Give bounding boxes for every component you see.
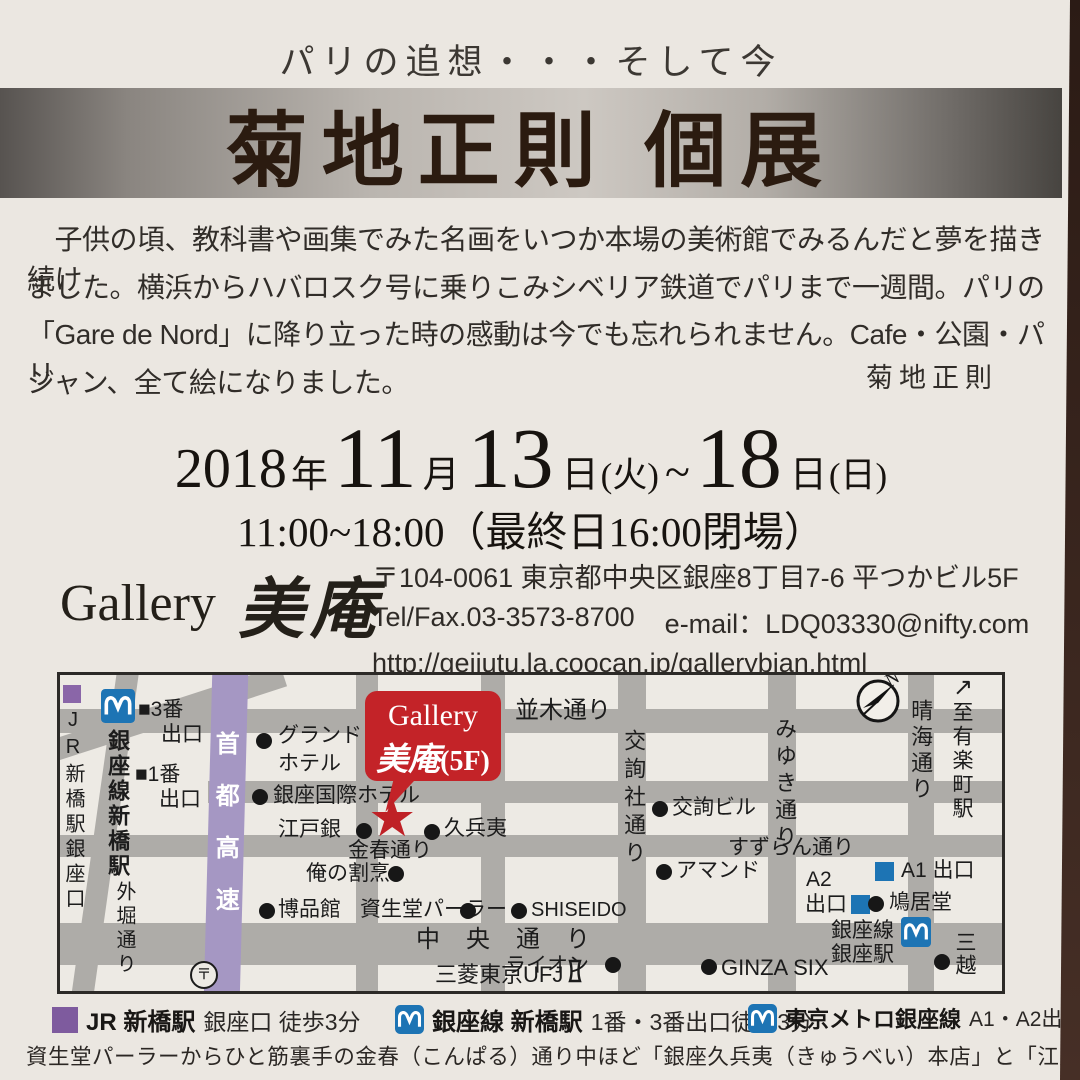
tokyo-metro-icon (748, 1004, 777, 1033)
label-jr-shimbashi-station: JR新橋駅銀座口 (62, 709, 83, 913)
date-year: 2018 (175, 437, 287, 501)
label-sotobori-dori: 外堀通り (113, 881, 134, 977)
label-grand-hotel-1: グランド (278, 725, 362, 747)
gallery-name-en: Gallery (60, 574, 216, 633)
poi-dot (256, 733, 272, 749)
date-day-start-week: (火) (601, 447, 659, 498)
legend-station-name: 銀座線 新橋駅 (432, 1002, 583, 1037)
poi-dot (460, 903, 476, 919)
gallery-name-jp: 美庵 (238, 556, 382, 652)
poi-dot (424, 824, 440, 840)
tokyo-metro-icon (395, 1005, 424, 1034)
label-kyukyodo: 鳩居堂 (889, 892, 952, 914)
label-exit3: ■3番 (138, 699, 183, 721)
date-day-end-unit: 日 (790, 444, 827, 498)
intro-line: 子供の頃、教科書や画集でみた名画をいつか本場の美術館でみるんだと夢を描き続け (27, 218, 1057, 266)
date-day-end: 18 (696, 408, 782, 508)
title-banner: 菊地正則 個展 (0, 88, 1062, 198)
legend-station-name: JR 新橋駅 (86, 1002, 195, 1037)
gallery-address: 〒104-0061 東京都中央区銀座8丁目7-6 平つかビル5F (372, 556, 1029, 595)
label-namiki-dori: 並木通り (515, 698, 611, 723)
label-shiseido-parlour: 資生堂パーラー (360, 899, 507, 921)
poi-dot (388, 866, 404, 882)
poi-dot (605, 957, 621, 973)
poi-dot (701, 959, 717, 975)
label-ginza-six: GINZA SIX (721, 956, 829, 979)
poi-dot (252, 789, 268, 805)
poi-dot (656, 864, 672, 880)
intro-line: 「Gare de Nord」に降り立った時の感動は今でも忘れられません。Cafe… (27, 313, 1057, 361)
bubble-floor: (5F) (440, 746, 490, 777)
label-a2-exit: 出口 (805, 894, 847, 916)
legend-tokyo-metro: 東京メトロ銀座線 A1・A2出口徒歩5分 (748, 1002, 1080, 1034)
label-ore-no-kappo: 俺の割烹 (306, 863, 390, 885)
label-ginza-line-shimbashi: 銀座線新橋駅 (106, 729, 129, 879)
legend-station-detail: 銀座口 徒歩3分 (203, 1003, 360, 1037)
label-ginza-station-line: 銀座線 (831, 920, 894, 942)
to-yurakucho-arrow: ↗ (953, 675, 973, 700)
bubble-gallery-jp: 美庵 (376, 741, 440, 777)
tokyo-metro-icon (101, 689, 135, 723)
bubble-gallery-en: Gallery (365, 699, 501, 733)
gallery-contact: 〒104-0061 東京都中央区銀座8丁目7-6 平つかビル5F Tel/Fax… (372, 556, 1029, 679)
date-month-unit: 月 (423, 444, 460, 498)
label-to-yurakucho: 至有楽町駅 (950, 701, 972, 821)
post-office-icon: 〒 (190, 961, 218, 989)
opening-hours: 11:00~18:00（最終日16:00閉場） (0, 498, 1062, 558)
date-day-start: 13 (468, 408, 554, 508)
road-konparu-suzuran (60, 835, 1005, 857)
exhibition-dates: 2018 年 11 月 13 日 (火) ~ 18 日 (日) (0, 408, 1062, 508)
label-exit1: ■1番 (135, 764, 180, 786)
gallery-tel: Tel/Fax.03-3573-8700 (372, 602, 635, 641)
label-shuto-expressway: 首都高速 (212, 731, 237, 939)
gallery-email: e-mail：LDQ03330@nifty.com (665, 602, 1030, 641)
label-hakuhinkan: 博品館 (278, 899, 341, 921)
poi-dot (652, 801, 668, 817)
poi-dot (259, 903, 275, 919)
label-edogin: 江戸銀 (278, 819, 341, 841)
jr-mark-square (63, 685, 81, 703)
label-a1-exit: A1 出口 (901, 860, 975, 882)
poi-dot (511, 903, 527, 919)
label-amand: アマンド (676, 860, 760, 882)
poi-dot (934, 954, 950, 970)
label-chuo-dori: 中央通り (416, 927, 616, 952)
jr-legend-square (52, 1007, 78, 1033)
access-map: JR新橋駅銀座口 銀座線新橋駅 ■3番 出口 ■1番 出口 首都高速 外堀通り … (57, 672, 1005, 994)
label-kyubei: 久兵夷 (444, 818, 507, 840)
poi-dot (868, 896, 884, 912)
label-ginza-station: 銀座駅 (831, 944, 894, 966)
label-lion: ライオン (505, 955, 589, 977)
gallery-star-marker: ★ (368, 791, 416, 845)
exhibition-title: 菊地正則 個展 (226, 84, 837, 203)
a1-exit-square (875, 862, 894, 881)
label-kojun-building: 交詢ビル (672, 797, 756, 819)
access-note: 資生堂パーラーからひと筋裏手の金春（こんぱる）通り中ほど「銀座久兵夷（きゅうべい… (26, 1040, 1080, 1071)
legend-jr: JR 新橋駅 銀座口 徒歩3分 (52, 1002, 361, 1037)
label-grand-hotel-2: ホテル (278, 753, 341, 775)
label-harumi-dori: 晴海通り (909, 699, 932, 803)
legend-station-name: 東京メトロ銀座線 (785, 1002, 961, 1034)
date-day-end-week: (日) (829, 447, 887, 498)
date-day-start-unit: 日 (562, 444, 599, 498)
tokyo-metro-icon (901, 917, 931, 947)
intro-line: ました。横浜からハバロスク号に乗りこみシベリア鉄道でパリまで一週間。パリの (27, 266, 1057, 314)
label-exit1-suffix: 出口 (159, 789, 201, 811)
label-miyuki-dori: みゆき通り (773, 717, 796, 852)
date-tilde: ~ (665, 445, 690, 498)
label-exit3-suffix: 出口 (161, 724, 203, 746)
gallery-location-bubble: Gallery 美庵(5F) (365, 691, 501, 781)
artist-signature: 菊地正則 (866, 356, 998, 395)
flyer-photo: { "tagline": "パリの追想・・・そして今", "title": "菊… (0, 0, 1080, 1080)
label-suzuran-dori: すずらん通り (728, 837, 854, 859)
date-month: 11 (334, 408, 417, 508)
label-shiseido: SHISEIDO (531, 900, 627, 921)
date-year-unit: 年 (291, 444, 328, 498)
label-mitsukoshi: 三越 (953, 931, 975, 977)
tagline: パリの追想・・・そして今 (0, 34, 1062, 85)
label-a2: A2 (806, 869, 832, 891)
label-kojunsha-dori: 交詢社通り (622, 729, 645, 869)
